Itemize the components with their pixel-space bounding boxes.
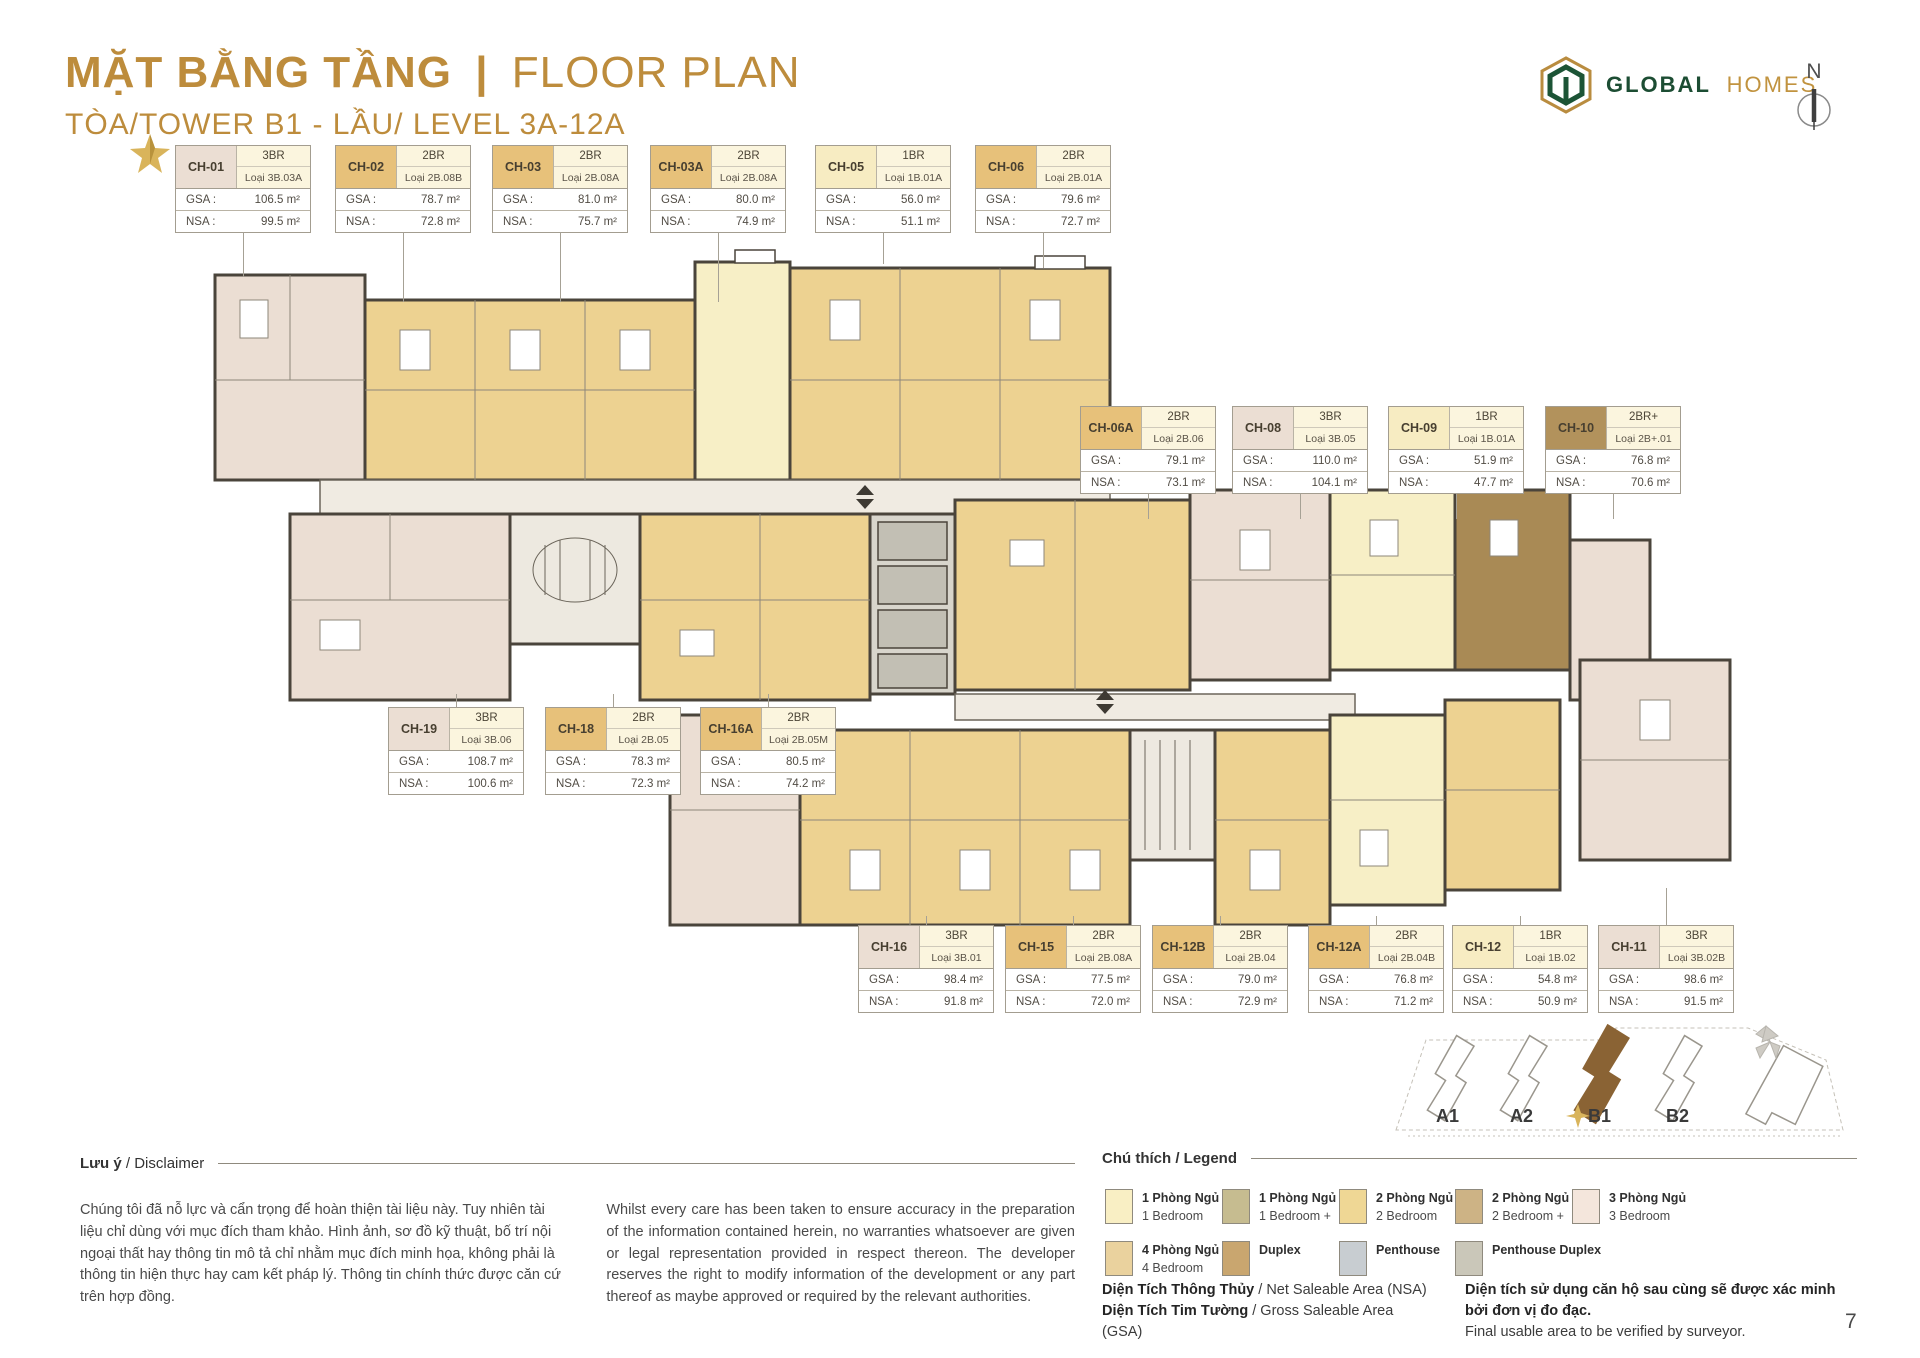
unit-layout-code: Loại 1B.01A [1450,428,1523,449]
nsa-label: NSA : [986,216,1015,228]
legend-label-en: 4 Bedroom [1142,1260,1219,1278]
unit-code: CH-10 [1546,407,1607,449]
gsa-label: GSA : [826,194,856,206]
unit-code: CH-16 [859,926,920,968]
gsa-value: 108.7 m² [468,756,513,768]
disclaimer-section: Lưu ý / Disclaimer Chúng tôi đã nỗ lực v… [80,1155,1075,1309]
page-number: 7 [1845,1310,1857,1334]
nsa-label: NSA : [1556,477,1585,489]
unit-layout-code: Loại 2B.05M [762,729,835,750]
gsa-value: 78.3 m² [631,756,670,768]
unit-card-ch-19: CH-19 3BR Loại 3B.06 GSA : 108.7 m² NSA … [388,707,524,795]
title-vietnamese: MẶT BẰNG TẦNG [65,48,452,97]
unit-layout-code: Loại 2B.08A [1067,947,1140,968]
page-title: MẶT BẰNG TẦNG | FLOOR PLAN [65,48,801,98]
nsa-label: NSA : [1016,996,1045,1008]
unit-layout-code: Loại 3B.06 [450,729,523,750]
unit-card-ch-06a: CH-06A 2BR Loại 2B.06 GSA : 79.1 m² NSA … [1080,406,1216,494]
gsa-label: GSA : [556,756,586,768]
gsa-label: GSA : [1091,455,1121,467]
unit-code: CH-08 [1233,407,1294,449]
gsa-label: GSA : [1163,974,1193,986]
nsa-value: 51.1 m² [901,216,940,228]
nsa-value: 71.2 m² [1394,996,1433,1008]
gsa-value: 76.8 m² [1394,974,1433,986]
logo-wordmark: GLOBAL HOMES [1606,72,1817,98]
site-minimap: A1 A2 B1 B2 [1388,1018,1858,1143]
floor-plan-page: MẶT BẰNG TẦNG | FLOOR PLAN TÒA/TOWER B1 … [0,0,1920,1358]
unit-code: CH-12B [1153,926,1214,968]
unit-card-ch-01: CH-01 3BR Loại 3B.03A GSA : 106.5 m² NSA… [175,145,311,233]
unit-layout-code: Loại 2B+.01 [1607,428,1680,449]
gsa-value: 98.6 m² [1684,974,1723,986]
gsa-label: GSA : [1243,455,1273,467]
legend-label-en: 3 Bedroom [1609,1208,1686,1226]
unit-bedroom-type: 2BR [1214,926,1287,947]
nsa-label: NSA : [1609,996,1638,1008]
unit-card-ch-08: CH-08 3BR Loại 3B.05 GSA : 110.0 m² NSA … [1232,406,1368,494]
gsa-value: 80.5 m² [786,756,825,768]
unit-code: CH-03 [493,146,554,188]
nsa-label: NSA : [1163,996,1192,1008]
gsa-value: 54.8 m² [1538,974,1577,986]
unit-layout-code: Loại 2B.04 [1214,947,1287,968]
legend-color-swatch [1222,1241,1250,1276]
leader-line [1456,493,1457,519]
legend-label-en: 1 Bedroom [1142,1208,1219,1226]
nsa-value: 72.0 m² [1091,996,1130,1008]
minimap-label-b2: B2 [1666,1106,1689,1126]
leader-line [1220,916,1221,926]
nsa-value: 72.7 m² [1061,216,1100,228]
nsa-label: NSA : [1091,477,1120,489]
unit-code: CH-16A [701,708,762,750]
unit-bedroom-type: 2BR [1370,926,1443,947]
unit-card-ch-09: CH-09 1BR Loại 1B.01A GSA : 51.9 m² NSA … [1388,406,1524,494]
unit-layout-code: Loại 2B.08A [712,167,785,188]
unit-bedroom-type: 3BR [920,926,993,947]
unit-bedroom-type: 3BR [237,146,310,167]
leader-line [926,916,927,926]
gsa-value: 78.7 m² [421,194,460,206]
unit-code: CH-02 [336,146,397,188]
unit-layout-code: Loại 3B.03A [237,167,310,188]
nsa-label: NSA : [186,216,215,228]
nsa-label: NSA : [826,216,855,228]
legend-label-vi: 1 Phòng Ngủ + [1259,1190,1347,1208]
nsa-value: 91.5 m² [1684,996,1723,1008]
nsa-label: NSA : [399,778,428,790]
unit-bedroom-type: 2BR [1037,146,1110,167]
unit-bedroom-type: 2BR+ [1607,407,1680,428]
legend-color-swatch [1339,1189,1367,1224]
gsa-value: 77.5 m² [1091,974,1130,986]
nsa-term-en: / Net Saleable Area (NSA) [1254,1282,1426,1298]
unit-card-ch-12b: CH-12B 2BR Loại 2B.04 GSA : 79.0 m² NSA … [1152,925,1288,1013]
gsa-value: 81.0 m² [578,194,617,206]
nsa-value: 100.6 m² [468,778,513,790]
legend-section: Chú thích / Legend 1 Phòng Ngủ 1 Bedroom… [1102,1150,1857,1287]
gsa-value: 79.6 m² [1061,194,1100,206]
gsa-label: GSA : [986,194,1016,206]
title-separator: | [475,48,488,97]
legend-label-vi: Penthouse [1376,1242,1440,1260]
gsa-value: 79.1 m² [1166,455,1205,467]
legend-heading: Chú thích / Legend [1102,1150,1857,1167]
leader-line [1148,493,1149,519]
leader-line [1043,232,1044,268]
gsa-value: 110.0 m² [1312,455,1357,467]
divider-line [1251,1158,1857,1159]
unit-bedroom-type: 1BR [877,146,950,167]
unit-bedroom-type: 2BR [397,146,470,167]
nsa-value: 72.8 m² [421,216,460,228]
gsa-value: 51.9 m² [1474,455,1513,467]
gsa-label: GSA : [1556,455,1586,467]
nsa-value: 50.9 m² [1538,996,1577,1008]
unit-code: CH-15 [1006,926,1067,968]
unit-bedroom-type: 2BR [607,708,680,729]
minimap-label-a1: A1 [1436,1106,1459,1126]
gsa-label: GSA : [1463,974,1493,986]
unit-layout-code: Loại 3B.01 [920,947,993,968]
verify-note-vi: Diện tích sử dụng căn hộ sau cùng sẽ đượ… [1465,1280,1860,1322]
unit-layout-code: Loại 2B.05 [607,729,680,750]
unit-bedroom-type: 3BR [1660,926,1733,947]
unit-bedroom-type: 2BR [712,146,785,167]
nsa-value: 75.7 m² [578,216,617,228]
unit-bedroom-type: 2BR [1142,407,1215,428]
legend-label-vi: Penthouse Duplex [1492,1242,1601,1260]
unit-bedroom-type: 2BR [1067,926,1140,947]
unit-card-ch-12: CH-12 1BR Loại 1B.02 GSA : 54.8 m² NSA :… [1452,925,1588,1013]
nsa-value: 72.3 m² [631,778,670,790]
unit-card-ch-18: CH-18 2BR Loại 2B.05 GSA : 78.3 m² NSA :… [545,707,681,795]
unit-code: CH-18 [546,708,607,750]
legend-color-swatch [1339,1241,1367,1276]
gsa-value: 80.0 m² [736,194,775,206]
leader-line [1073,916,1074,926]
unit-code: CH-11 [1599,926,1660,968]
gsa-label: GSA : [1399,455,1429,467]
nsa-label: NSA : [711,778,740,790]
nsa-value: 74.9 m² [736,216,775,228]
nsa-label: NSA : [1319,996,1348,1008]
unit-code: CH-03A [651,146,712,188]
disclaimer-text-en: Whilst every care has been taken to ensu… [606,1200,1075,1309]
legend-label-vi: 4 Phòng Ngủ [1142,1242,1219,1260]
gsa-label: GSA : [1016,974,1046,986]
unit-card-ch-16: CH-16 3BR Loại 3B.01 GSA : 98.4 m² NSA :… [858,925,994,1013]
nsa-value: 104.1 m² [1312,477,1357,489]
logo-text-global: GLOBAL [1606,72,1710,97]
nsa-label: NSA : [1463,996,1492,1008]
legend-label-en: 2 Bedroom + [1492,1208,1580,1226]
nsa-value: 72.9 m² [1238,996,1277,1008]
leader-line [883,232,884,264]
disclaimer-heading: Lưu ý / Disclaimer [80,1155,1075,1172]
nsa-label: NSA : [556,778,585,790]
leader-line [456,694,457,708]
minimap-compass-star-icon [1756,1026,1780,1058]
legend-item: Penthouse [1339,1241,1440,1276]
nsa-label: NSA : [1399,477,1428,489]
svg-text:N: N [1806,60,1821,83]
unit-card-ch-03: CH-03 2BR Loại 2B.08A GSA : 81.0 m² NSA … [492,145,628,233]
gsa-value: 106.5 m² [255,194,300,206]
unit-card-ch-03a: CH-03A 2BR Loại 2B.08A GSA : 80.0 m² NSA… [650,145,786,233]
unit-code: CH-19 [389,708,450,750]
legend-label-vi: 1 Phòng Ngủ [1142,1190,1219,1208]
gsa-label: GSA : [869,974,899,986]
legend-item: 3 Phòng Ngủ 3 Bedroom [1572,1189,1686,1225]
unit-code: CH-06 [976,146,1037,188]
legend-label-vi: 2 Phòng Ngủ + [1492,1190,1580,1208]
leader-line [718,232,719,302]
unit-card-ch-11: CH-11 3BR Loại 3B.02B GSA : 98.6 m² NSA … [1598,925,1734,1013]
unit-code: CH-09 [1389,407,1450,449]
legend-label-vi: Duplex [1259,1242,1301,1260]
legend-color-swatch [1455,1241,1483,1276]
legend-label-vi: 2 Phòng Ngủ [1376,1190,1453,1208]
north-compass-icon: N [1788,58,1840,143]
minimap-label-a2: A2 [1510,1106,1533,1126]
page-title-block: MẶT BẰNG TẦNG | FLOOR PLAN TÒA/TOWER B1 … [65,48,801,142]
logo-hexagon-icon [1538,55,1594,115]
legend-label-vi: 3 Phòng Ngủ [1609,1190,1686,1208]
unit-layout-code: Loại 1B.02 [1514,947,1587,968]
gsa-value: 76.8 m² [1631,455,1670,467]
leader-line [560,232,561,302]
legend-color-swatch [1222,1189,1250,1224]
unit-card-ch-05: CH-05 1BR Loại 1B.01A GSA : 56.0 m² NSA … [815,145,951,233]
gsa-term-vi: Diện Tích Tim Tường [1102,1303,1248,1319]
title-english: FLOOR PLAN [512,48,801,97]
legend-color-swatch [1105,1189,1133,1224]
unit-bedroom-type: 3BR [1294,407,1367,428]
gsa-value: 98.4 m² [944,974,983,986]
unit-bedroom-type: 2BR [762,708,835,729]
leader-line [613,694,614,708]
unit-bedroom-type: 3BR [450,708,523,729]
unit-card-ch-15: CH-15 2BR Loại 2B.08A GSA : 77.5 m² NSA … [1005,925,1141,1013]
leader-line [243,232,244,277]
gsa-label: GSA : [1319,974,1349,986]
unit-bedroom-type: 1BR [1514,926,1587,947]
unit-card-ch-16a: CH-16A 2BR Loại 2B.05M GSA : 80.5 m² NSA… [700,707,836,795]
legend-heading-text: Chú thích / Legend [1102,1150,1237,1167]
nsa-label: NSA : [346,216,375,228]
divider-line [218,1163,1075,1164]
unit-code: CH-06A [1081,407,1142,449]
featured-star-icon [128,132,172,176]
unit-layout-code: Loại 1B.01A [877,167,950,188]
unit-layout-code: Loại 3B.05 [1294,428,1367,449]
leader-line [1520,916,1521,926]
area-notes: Diện Tích Thông Thủy / Net Saleable Area… [1102,1280,1862,1343]
legend-item: Duplex [1222,1241,1301,1276]
unit-code: CH-01 [176,146,237,188]
legend-item: 1 Phòng Ngủ + 1 Bedroom + [1222,1189,1347,1225]
unit-card-ch-02: CH-02 2BR Loại 2B.08B GSA : 78.7 m² NSA … [335,145,471,233]
legend-item: 1 Phòng Ngủ 1 Bedroom [1105,1189,1219,1225]
gsa-label: GSA : [661,194,691,206]
unit-layout-code: Loại 2B.08B [397,167,470,188]
nsa-value: 73.1 m² [1166,477,1205,489]
disclaimer-heading-vi: Lưu ý [80,1155,122,1172]
leader-line [1613,493,1614,519]
nsa-label: NSA : [1243,477,1272,489]
unit-code: CH-05 [816,146,877,188]
disclaimer-text-vi: Chúng tôi đã nỗ lực và cẩn trọng để hoàn… [80,1200,562,1309]
unit-code: CH-12A [1309,926,1370,968]
globalhomes-logo: GLOBAL HOMES [1538,55,1817,115]
nsa-value: 70.6 m² [1631,477,1670,489]
leader-line [768,694,769,708]
leader-line [1300,493,1301,519]
nsa-value: 47.7 m² [1474,477,1513,489]
leader-line [1376,916,1377,926]
unit-card-ch-12a: CH-12A 2BR Loại 2B.04B GSA : 76.8 m² NSA… [1308,925,1444,1013]
disclaimer-heading-en: / Disclaimer [122,1155,205,1172]
leader-line [1666,888,1667,926]
gsa-label: GSA : [399,756,429,768]
unit-layout-code: Loại 2B.04B [1370,947,1443,968]
unit-layout-code: Loại 2B.06 [1142,428,1215,449]
legend-color-swatch [1105,1241,1133,1276]
gsa-label: GSA : [346,194,376,206]
tower-outline-extra [1745,1042,1825,1136]
nsa-label: NSA : [661,216,690,228]
legend-label-en: 1 Bedroom + [1259,1208,1347,1226]
gsa-label: GSA : [711,756,741,768]
unit-card-ch-10: CH-10 2BR+ Loại 2B+.01 GSA : 76.8 m² NSA… [1545,406,1681,494]
legend-item: Penthouse Duplex [1455,1241,1601,1276]
unit-bedroom-type: 1BR [1450,407,1523,428]
unit-layout-code: Loại 3B.02B [1660,947,1733,968]
unit-code: CH-12 [1453,926,1514,968]
legend-item: 4 Phòng Ngủ 4 Bedroom [1105,1241,1219,1277]
legend-label-en: 2 Bedroom [1376,1208,1453,1226]
nsa-value: 99.5 m² [261,216,300,228]
nsa-value: 74.2 m² [786,778,825,790]
gsa-label: GSA : [1609,974,1639,986]
minimap-label-b1: B1 [1588,1106,1611,1126]
legend-item: 2 Phòng Ngủ + 2 Bedroom + [1455,1189,1580,1225]
nsa-label: NSA : [503,216,532,228]
unit-bedroom-type: 2BR [554,146,627,167]
gsa-value: 56.0 m² [901,194,940,206]
unit-layout-code: Loại 2B.08A [554,167,627,188]
gsa-label: GSA : [503,194,533,206]
unit-layout-code: Loại 2B.01A [1037,167,1110,188]
gsa-value: 79.0 m² [1238,974,1277,986]
tower-level-subtitle: TÒA/TOWER B1 - LẦU/ LEVEL 3A-12A [65,108,801,142]
leader-line [403,232,404,302]
legend-item: 2 Phòng Ngủ 2 Bedroom [1339,1189,1453,1225]
verify-note-en: Final usable area to be verified by surv… [1465,1322,1860,1343]
nsa-term-vi: Diện Tích Thông Thủy [1102,1282,1254,1298]
legend-color-swatch [1572,1189,1600,1224]
gsa-label: GSA : [186,194,216,206]
legend-color-swatch [1455,1189,1483,1224]
nsa-label: NSA : [869,996,898,1008]
nsa-value: 91.8 m² [944,996,983,1008]
unit-card-ch-06: CH-06 2BR Loại 2B.01A GSA : 79.6 m² NSA … [975,145,1111,233]
